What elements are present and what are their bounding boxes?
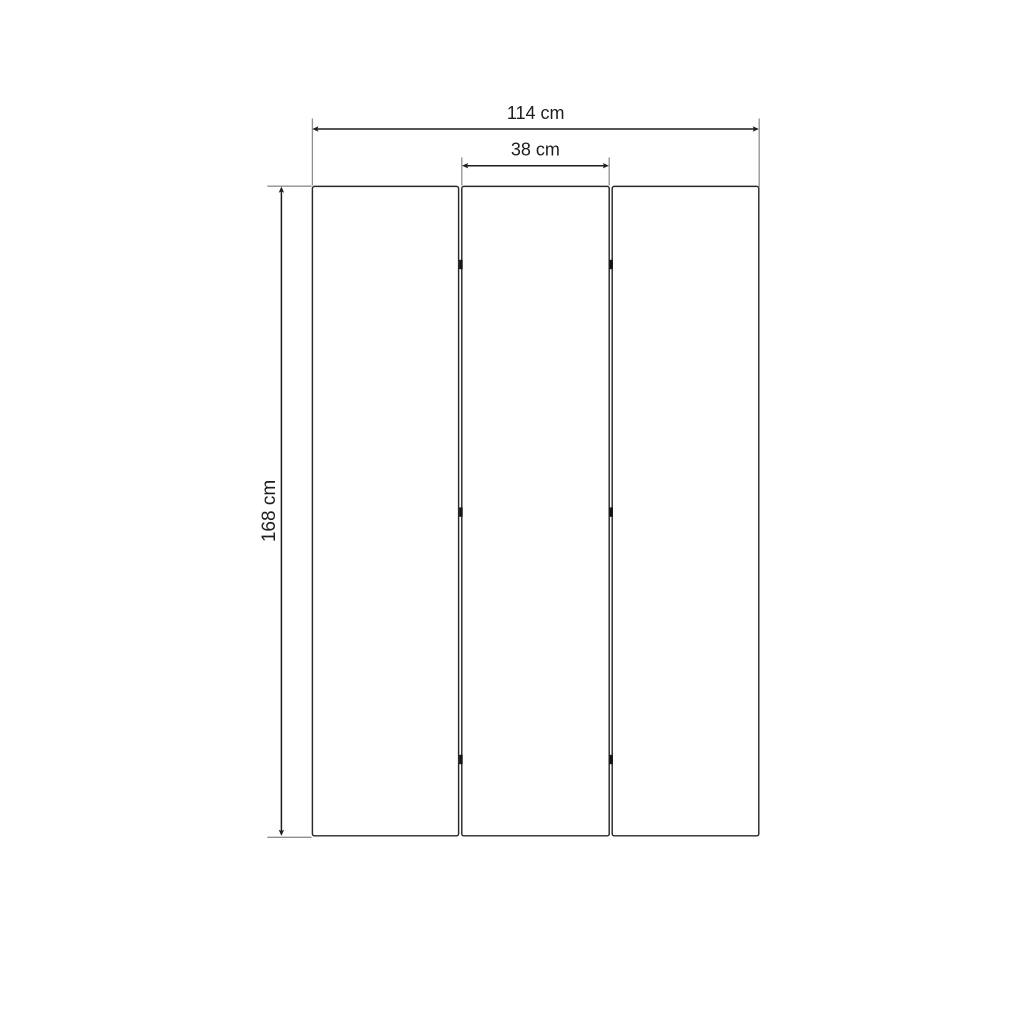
svg-text:168 cm: 168 cm: [259, 480, 280, 542]
svg-text:38 cm: 38 cm: [511, 140, 560, 160]
svg-text:114 cm: 114 cm: [507, 103, 565, 123]
